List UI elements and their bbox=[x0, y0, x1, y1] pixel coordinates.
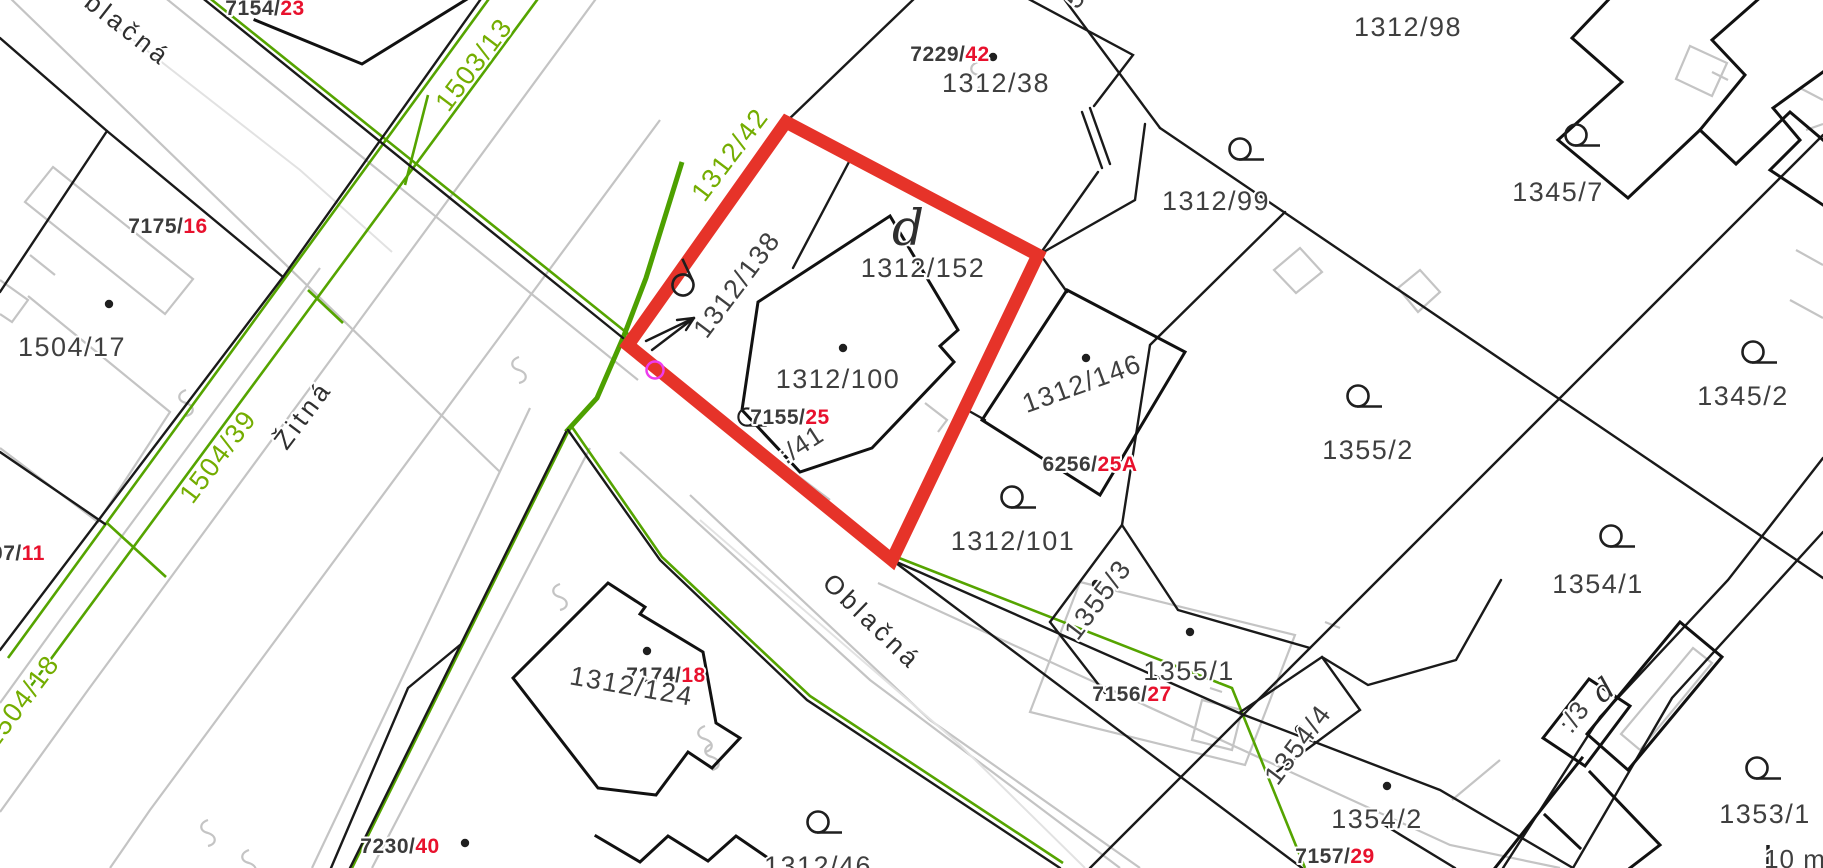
parcel-label-1345-2: 1345/2 bbox=[1697, 381, 1789, 411]
parcel-label-1503-13: 1503/13 bbox=[429, 12, 518, 116]
slucka-symbol-1355-2 bbox=[1348, 386, 1383, 407]
parcel-label-1312-152: 1312/152 bbox=[861, 253, 986, 283]
house-number-40: 40 bbox=[415, 835, 439, 858]
parcel-label-1312-98: 1312/98 bbox=[1354, 12, 1462, 42]
parcel-label-7157-black: 7157/ bbox=[1295, 845, 1350, 868]
street-label-oblacna-top: Oblačná bbox=[60, 0, 177, 72]
parcel-label-1354-2: 1354/2 bbox=[1331, 804, 1423, 834]
parcel-label-1312-101: 1312/101 bbox=[951, 526, 1076, 556]
street-label-zitna: Žitná bbox=[267, 374, 338, 454]
parcel-label-1312-46: 1312/46 bbox=[764, 851, 872, 868]
parcel-label-1312-38: 1312/38 bbox=[942, 68, 1050, 98]
house-number-25A: 25A bbox=[1098, 453, 1138, 476]
scale-label: 10 m bbox=[1764, 844, 1823, 868]
parcel-label-7154-black: 7154/ bbox=[225, 0, 280, 20]
parcel-label-1504-18: 1504/18 bbox=[0, 649, 65, 753]
parcel-label-7175-black: 7175/ bbox=[128, 215, 183, 238]
parcel-label-07-11: 07/11 bbox=[0, 542, 45, 565]
parcel-label-7229-42: 7229/42 bbox=[910, 43, 989, 66]
parcel-label-6256-25A: 6256/25A bbox=[1042, 453, 1137, 476]
house-number-29: 29 bbox=[1350, 845, 1374, 868]
parcel-label-1355-3: 1355/3 bbox=[1058, 554, 1137, 645]
parcel-label-7154-23: 7154/23 bbox=[225, 0, 304, 20]
map-letter-d-small: d bbox=[1585, 671, 1622, 710]
parcel-label-1354-4: 1354/4 bbox=[1258, 699, 1337, 790]
house-number-23: 23 bbox=[280, 0, 304, 20]
parcel-label-1355-1: 1355/1 bbox=[1143, 656, 1235, 686]
parcel-label-7156-27: 7156/27 bbox=[1092, 683, 1171, 706]
slucka-symbol-1312-99 bbox=[1230, 139, 1265, 160]
parcel-label-7155-25: 7155/25 bbox=[750, 406, 829, 429]
parcel-label-7157-29: 7157/29 bbox=[1295, 845, 1374, 868]
parcel-label-1312-100: 1312/100 bbox=[776, 364, 901, 394]
house-number-27: 27 bbox=[1147, 683, 1171, 706]
slucka-symbol-1345-2 bbox=[1743, 342, 1778, 363]
slucka-symbol-1312-101 bbox=[1002, 487, 1037, 508]
parcel-label-1504-17: 1504/17 bbox=[18, 332, 126, 362]
parcel-label-7156-black: 7156/ bbox=[1092, 683, 1147, 706]
slucka-symbol-1354-1 bbox=[1601, 526, 1636, 547]
parcel-label-7155-black: 7155/ bbox=[750, 406, 805, 429]
street-label-oblacna-bottom: Oblačná bbox=[817, 567, 928, 675]
parcel-label-1353-1: 1353/1 bbox=[1719, 799, 1811, 829]
slucka-symbol-1312-46 bbox=[808, 812, 843, 833]
slucka-symbol-1353-1 bbox=[1747, 758, 1782, 779]
map-labels: Oblačná Žitná Oblačná 7154/23 7175/16 15… bbox=[0, 0, 1823, 868]
parcel-label-1312-99: 1312/99 bbox=[1162, 186, 1270, 216]
parcel-label-6256-black: 6256/ bbox=[1042, 453, 1097, 476]
house-number-16: 16 bbox=[183, 215, 207, 238]
parcel-label-1345-7: 1345/7 bbox=[1512, 177, 1604, 207]
parcel-label-7175-16: 7175/16 bbox=[128, 215, 207, 238]
house-number-42: 42 bbox=[965, 43, 989, 66]
reference-arrow bbox=[646, 318, 694, 350]
parcel-label-1354-1: 1354/1 bbox=[1552, 569, 1644, 599]
parcel-label-7230-40: 7230/40 bbox=[360, 835, 439, 858]
map-letter-d-big: d bbox=[892, 199, 924, 257]
parcel-label-1355-2: 1355/2 bbox=[1322, 435, 1414, 465]
parcel-label-7230-black: 7230/ bbox=[360, 835, 415, 858]
parcel-label-07-black: 07/ bbox=[0, 542, 22, 565]
cadastral-map-viewport[interactable]: Oblačná Žitná Oblačná 7154/23 7175/16 15… bbox=[0, 0, 1823, 868]
house-number-11: 11 bbox=[22, 542, 45, 565]
parcel-label-7229-black: 7229/ bbox=[910, 43, 965, 66]
parcel-label-1504-39: 1504/39 bbox=[173, 404, 262, 508]
cadastral-map-canvas[interactable]: Oblačná Žitná Oblačná 7154/23 7175/16 15… bbox=[0, 0, 1823, 868]
